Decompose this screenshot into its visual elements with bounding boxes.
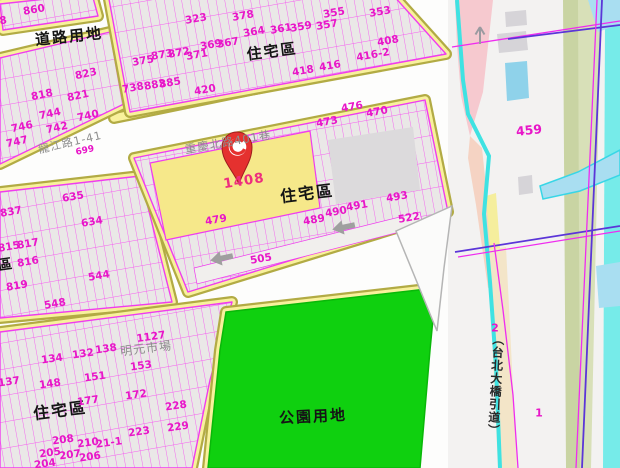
map-canvas[interactable]: 道路用地 住宅區 住宅區 住宅區 區 公園用地 重慶北路401巷 龍江路1-41… bbox=[0, 0, 620, 468]
building bbox=[497, 31, 528, 53]
park bbox=[208, 288, 436, 468]
river-corridor bbox=[448, 0, 620, 468]
building bbox=[505, 10, 527, 27]
park-area bbox=[208, 288, 436, 468]
river-channel bbox=[603, 22, 620, 468]
parcel-number: 204 bbox=[33, 457, 56, 468]
pool-building bbox=[505, 61, 529, 101]
building bbox=[518, 175, 533, 195]
